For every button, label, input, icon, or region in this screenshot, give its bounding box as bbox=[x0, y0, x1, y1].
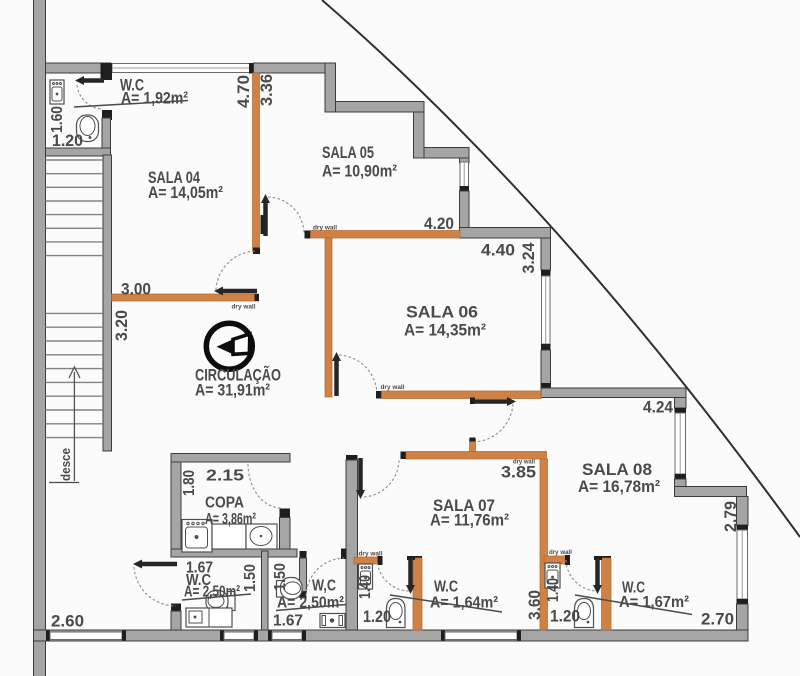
svg-text:1.60: 1.60 bbox=[49, 106, 66, 133]
svg-text:1.20: 1.20 bbox=[363, 607, 391, 626]
svg-text:dry wall: dry wall bbox=[232, 304, 256, 311]
svg-text:W,C: W,C bbox=[312, 578, 336, 595]
svg-text:2.79: 2.79 bbox=[721, 501, 740, 532]
svg-text:4.70: 4.70 bbox=[234, 75, 253, 108]
svg-text:1.80: 1.80 bbox=[181, 470, 198, 496]
svg-text:2.70: 2.70 bbox=[701, 610, 734, 629]
svg-text:4.40: 4.40 bbox=[481, 241, 515, 260]
svg-text:A= 16,78m²: A= 16,78m² bbox=[578, 477, 660, 496]
svg-text:dry wall: dry wall bbox=[513, 459, 535, 466]
svg-text:dry wall: dry wall bbox=[359, 551, 383, 558]
svg-text:3.36: 3.36 bbox=[257, 74, 276, 106]
svg-text:A= 31,91m²: A= 31,91m² bbox=[195, 382, 270, 400]
svg-text:SALA 06: SALA 06 bbox=[406, 303, 478, 322]
svg-text:1.67: 1.67 bbox=[273, 613, 303, 630]
svg-text:4.24: 4.24 bbox=[643, 398, 673, 417]
svg-text:2.15: 2.15 bbox=[206, 468, 244, 485]
svg-text:dry wall: dry wall bbox=[381, 384, 405, 391]
svg-text:3.24: 3.24 bbox=[519, 242, 538, 274]
svg-text:A= 1,92m²: A= 1,92m² bbox=[121, 89, 188, 108]
svg-text:W.C: W.C bbox=[434, 579, 458, 596]
svg-text:1.50: 1.50 bbox=[242, 564, 259, 592]
svg-text:A= 10,90m²: A= 10,90m² bbox=[322, 162, 397, 181]
svg-text:3.20: 3.20 bbox=[112, 310, 131, 341]
svg-text:3.00: 3.00 bbox=[121, 280, 151, 299]
svg-text:3.60: 3.60 bbox=[525, 590, 544, 620]
svg-text:1.40: 1.40 bbox=[357, 575, 374, 599]
svg-text:SALA 05: SALA 05 bbox=[322, 143, 374, 162]
svg-text:1.20: 1.20 bbox=[52, 131, 83, 150]
svg-text:COPA: COPA bbox=[205, 495, 244, 512]
svg-text:A= 14,05m²: A= 14,05m² bbox=[148, 183, 223, 202]
svg-text:1.40: 1.40 bbox=[545, 578, 562, 602]
svg-text:1.50: 1.50 bbox=[272, 563, 289, 591]
svg-text:desce: desce bbox=[58, 448, 73, 481]
svg-text:A= 3,86m²: A= 3,86m² bbox=[205, 511, 256, 528]
svg-text:1.20: 1.20 bbox=[550, 607, 580, 626]
svg-text:2.60: 2.60 bbox=[51, 612, 84, 631]
svg-text:dry wall: dry wall bbox=[313, 225, 337, 232]
svg-text:A= 14,35m²: A= 14,35m² bbox=[404, 321, 486, 340]
svg-text:dry wall: dry wall bbox=[549, 549, 572, 556]
svg-text:A= 11,76m²: A= 11,76m² bbox=[430, 511, 509, 530]
svg-text:4.20: 4.20 bbox=[424, 214, 454, 233]
